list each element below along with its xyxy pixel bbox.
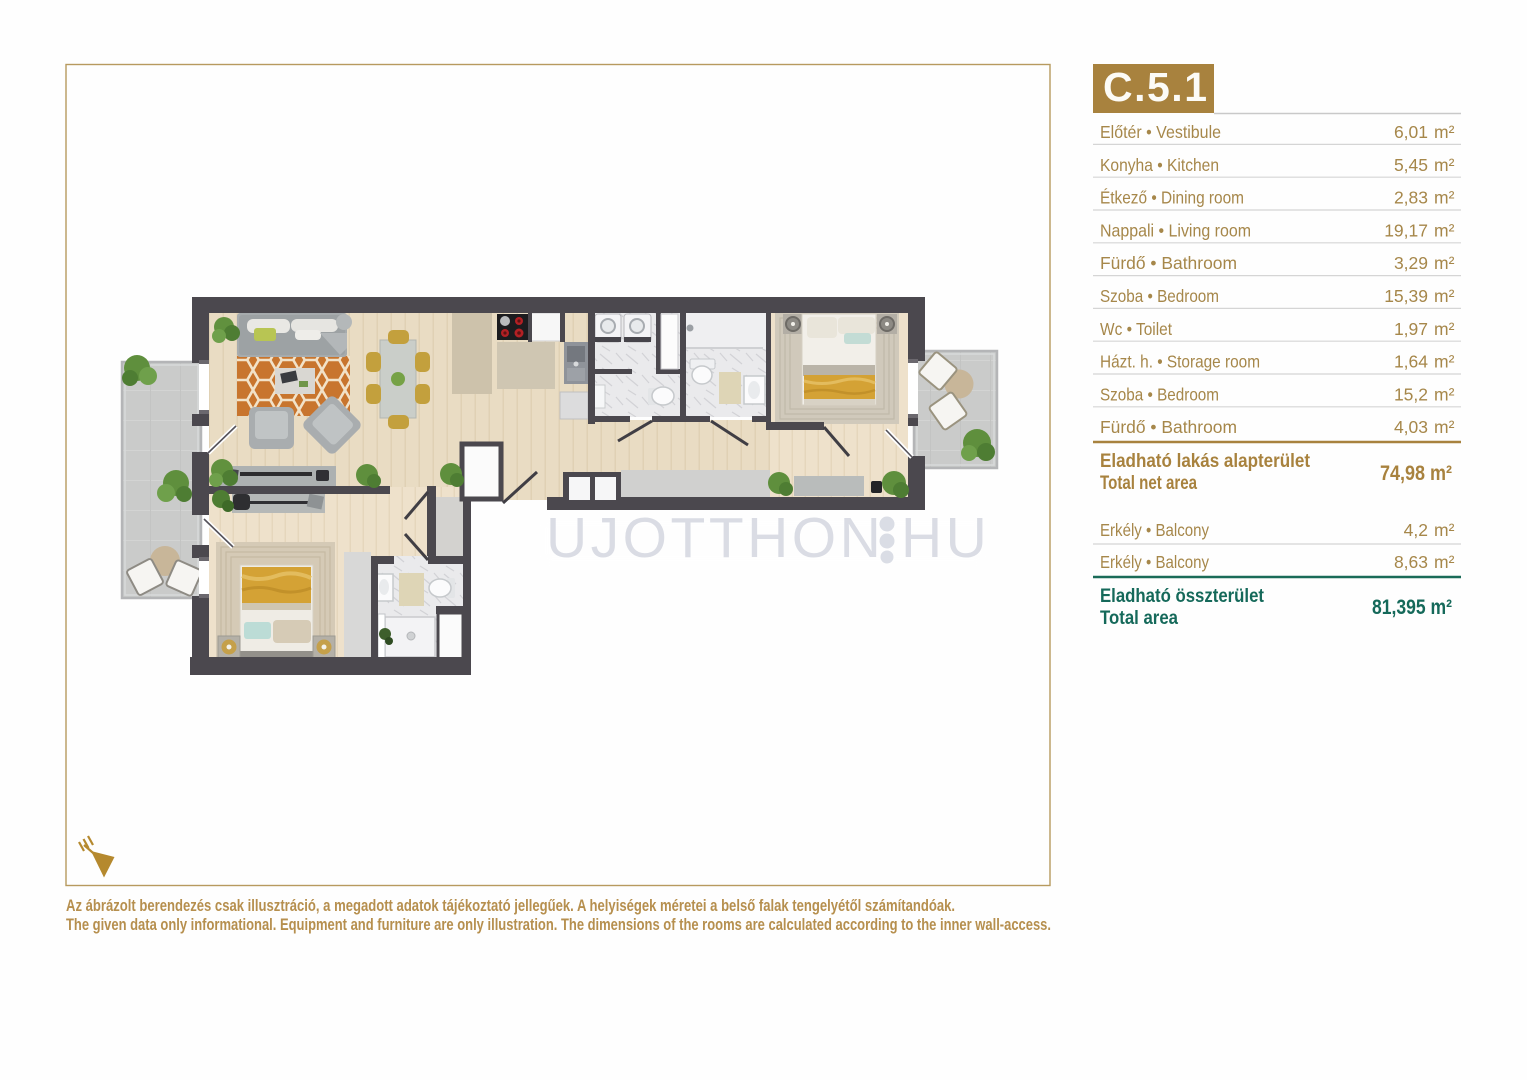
svg-text:1,64: 1,64 (1394, 352, 1428, 372)
svg-text:19,17: 19,17 (1384, 220, 1428, 240)
svg-text:m²: m² (1434, 155, 1455, 175)
svg-text:m²: m² (1434, 520, 1455, 540)
svg-text:Total area: Total area (1100, 608, 1178, 629)
svg-text:Eladható lakás alapterület: Eladható lakás alapterület (1100, 451, 1311, 472)
svg-text:m²: m² (1434, 552, 1455, 572)
svg-text:HU: HU (901, 506, 990, 570)
svg-text:15,2: 15,2 (1394, 384, 1428, 404)
svg-text:Az ábrázolt berendezés csak il: Az ábrázolt berendezés csak illusztráció… (66, 897, 955, 915)
svg-text:m²: m² (1434, 286, 1455, 306)
svg-text:Szoba • Bedroom: Szoba • Bedroom (1100, 286, 1219, 306)
svg-text:m²: m² (1434, 220, 1455, 240)
svg-text:81,395 m²: 81,395 m² (1372, 596, 1452, 619)
svg-text:Erkély • Balcony: Erkély • Balcony (1100, 520, 1209, 540)
svg-text:5,45: 5,45 (1394, 155, 1428, 175)
svg-text:Szoba • Bedroom: Szoba • Bedroom (1100, 384, 1219, 404)
svg-text:Fürdő • Bathroom: Fürdő • Bathroom (1100, 253, 1237, 273)
svg-text:3,29: 3,29 (1394, 253, 1428, 273)
svg-text:m²: m² (1434, 319, 1455, 339)
svg-text:Házt. h. • Storage room: Házt. h. • Storage room (1100, 352, 1260, 372)
svg-text:Total net area: Total net area (1100, 473, 1197, 494)
svg-text:Wc • Toilet: Wc • Toilet (1100, 319, 1172, 339)
svg-text:UJOTTHON: UJOTTHON (546, 506, 884, 570)
svg-text:74,98 m²: 74,98 m² (1380, 462, 1452, 485)
svg-text:The given data only informatio: The given data only informational. Equip… (66, 916, 1051, 934)
svg-text:Erkély • Balcony: Erkély • Balcony (1100, 552, 1209, 572)
svg-text:C.5.1: C.5.1 (1103, 64, 1209, 110)
svg-text:4,03: 4,03 (1394, 417, 1428, 437)
svg-text:4,2: 4,2 (1404, 520, 1428, 540)
svg-text:m²: m² (1434, 352, 1455, 372)
svg-text:Konyha • Kitchen: Konyha • Kitchen (1100, 155, 1219, 175)
svg-text:m²: m² (1434, 122, 1455, 142)
svg-text:2,83: 2,83 (1394, 188, 1428, 208)
svg-text:Fürdő • Bathroom: Fürdő • Bathroom (1100, 417, 1237, 437)
svg-text:m²: m² (1434, 253, 1455, 273)
svg-text:m²: m² (1434, 417, 1455, 437)
svg-text:Étkező • Dining room: Étkező • Dining room (1100, 188, 1244, 208)
svg-text:8,63: 8,63 (1394, 552, 1428, 572)
svg-text:Eladható összterület: Eladható összterület (1100, 586, 1265, 607)
svg-text:1,97: 1,97 (1394, 319, 1428, 339)
svg-text:m²: m² (1434, 384, 1455, 404)
svg-text:15,39: 15,39 (1384, 286, 1428, 306)
svg-text:Nappali • Living room: Nappali • Living room (1100, 220, 1251, 240)
svg-text:Előtér • Vestibule: Előtér • Vestibule (1100, 122, 1221, 142)
svg-text:m²: m² (1434, 188, 1455, 208)
svg-text:6,01: 6,01 (1394, 122, 1428, 142)
